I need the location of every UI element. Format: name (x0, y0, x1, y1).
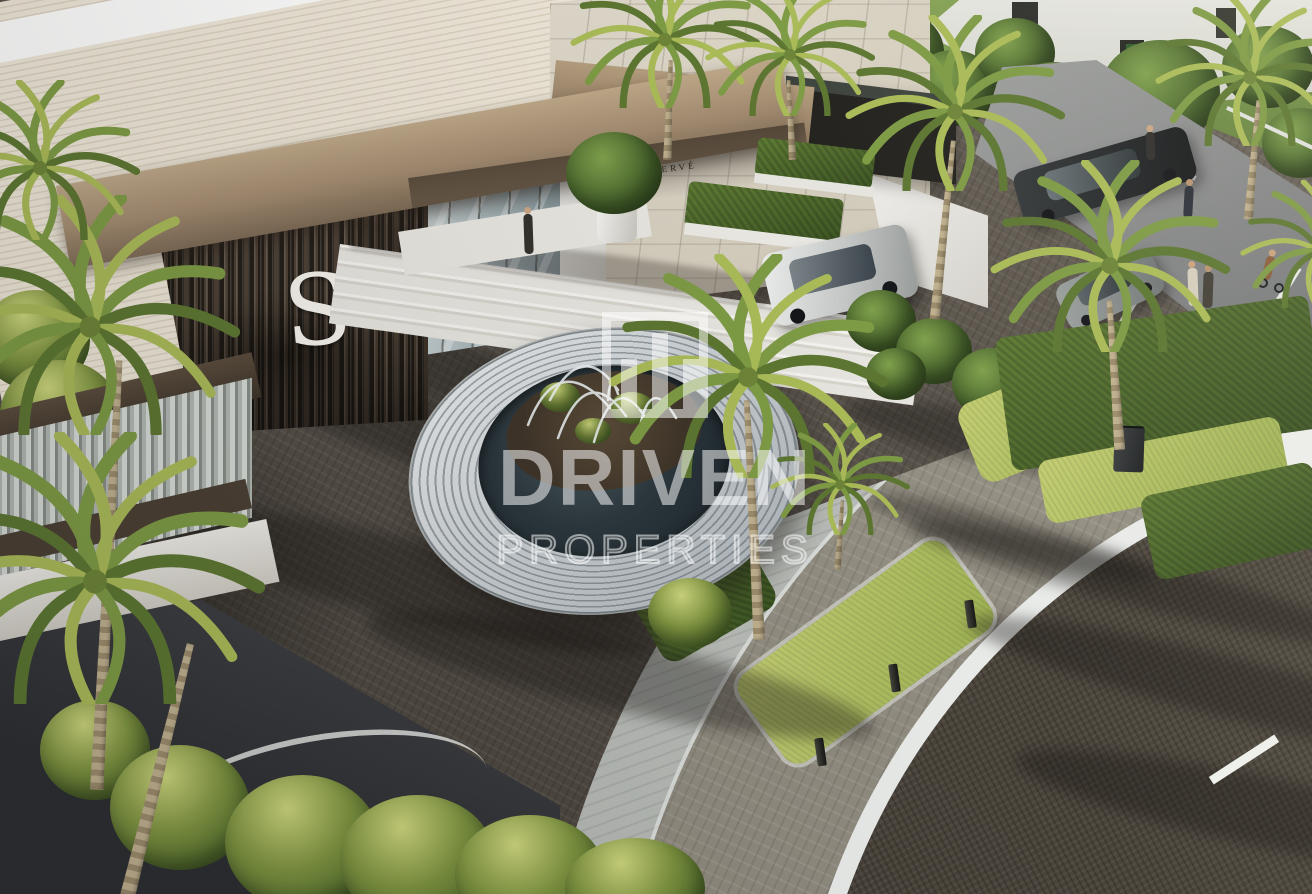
watermark-logo-bar (621, 359, 637, 409)
palm-tree (1155, 0, 1312, 146)
watermark: DRIVEN PROPERTIES (455, 312, 855, 570)
potted-tree (566, 132, 662, 214)
palm-tree (990, 160, 1230, 352)
palm-tree (0, 432, 265, 704)
bush (648, 578, 732, 648)
palm-tree (0, 80, 140, 240)
driven-buildings-square-icon (602, 312, 708, 418)
pedestrian (1146, 132, 1156, 160)
watermark-logo-bar (652, 333, 668, 409)
watermark-logo-bar (683, 359, 699, 409)
watermark-title: DRIVEN (498, 438, 812, 518)
pedestrian-at-entrance (523, 214, 533, 254)
render-image: SOBHA RESERVÉ S (0, 0, 1312, 894)
palm-tree (1240, 180, 1312, 308)
watermark-subtitle: PROPERTIES (496, 530, 813, 570)
